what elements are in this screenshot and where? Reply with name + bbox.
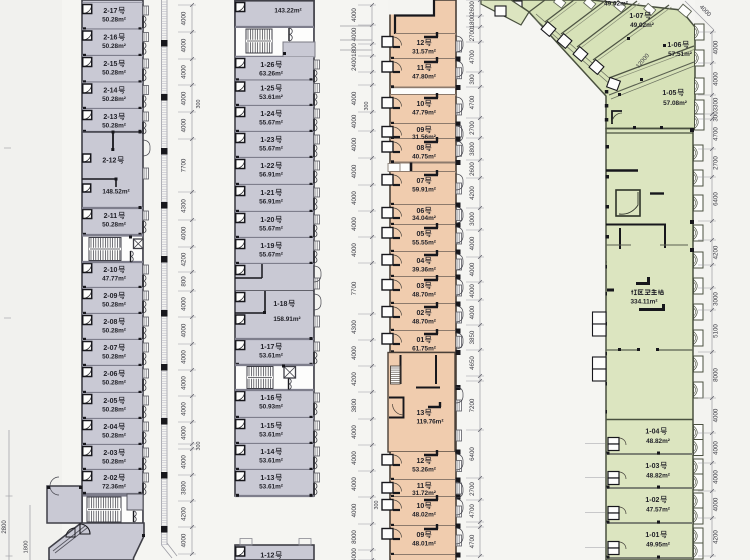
svg-text:4000: 4000	[181, 226, 188, 240]
svg-text:300: 300	[364, 102, 370, 111]
svg-text:47.77m²: 47.77m²	[102, 276, 126, 283]
svg-text:4000: 4000	[351, 217, 358, 231]
svg-text:61.75m²: 61.75m²	[412, 346, 436, 353]
svg-text:3850: 3850	[469, 330, 476, 344]
svg-text:50.28m²: 50.28m²	[102, 459, 126, 466]
svg-text:50.93m²: 50.93m²	[259, 404, 283, 411]
svg-text:4000: 4000	[351, 27, 358, 41]
svg-text:8000: 8000	[351, 530, 358, 544]
svg-text:31.72m²: 31.72m²	[412, 490, 436, 497]
svg-text:57.08m²: 57.08m²	[663, 100, 687, 107]
svg-text:2700: 2700	[469, 121, 476, 135]
svg-text:09: 09	[417, 127, 425, 134]
svg-text:49.02m²: 49.02m²	[604, 1, 628, 8]
svg-text:48.70m²: 48.70m²	[412, 292, 436, 299]
svg-text:56.91m²: 56.91m²	[259, 172, 283, 179]
svg-text:2-11: 2-11	[104, 213, 118, 220]
svg-text:300: 300	[713, 111, 720, 122]
svg-text:4000: 4000	[181, 91, 188, 105]
svg-text:3800: 3800	[469, 142, 476, 156]
svg-text:4200: 4200	[351, 372, 358, 386]
svg-text:1-20: 1-20	[260, 217, 274, 224]
svg-text:300: 300	[469, 74, 476, 85]
svg-text:1-14: 1-14	[260, 449, 274, 456]
svg-text:1-17: 1-17	[260, 344, 274, 351]
svg-text:2600: 2600	[469, 1, 476, 15]
svg-text:48.70m²: 48.70m²	[412, 319, 436, 326]
svg-text:50.28m²: 50.28m²	[102, 407, 126, 414]
svg-text:50.28m²: 50.28m²	[102, 328, 126, 335]
svg-text:4700: 4700	[469, 504, 476, 518]
svg-text:300: 300	[196, 442, 202, 451]
svg-text:49.95m²: 49.95m²	[646, 542, 670, 549]
svg-text:55.67m²: 55.67m²	[259, 252, 283, 259]
svg-text:300: 300	[374, 501, 380, 510]
svg-text:2-12: 2-12	[102, 158, 116, 165]
svg-text:7700: 7700	[181, 158, 188, 172]
svg-text:1-16: 1-16	[260, 395, 274, 402]
svg-text:4000: 4000	[713, 470, 720, 484]
svg-text:1-21: 1-21	[260, 190, 274, 197]
svg-text:1800: 1800	[469, 14, 476, 28]
svg-text:1-23: 1-23	[260, 137, 274, 144]
svg-text:1-22: 1-22	[260, 163, 274, 170]
svg-text:2800: 2800	[2, 520, 8, 534]
svg-text:55.67m²: 55.67m²	[259, 226, 283, 233]
svg-text:04: 04	[417, 258, 425, 265]
svg-text:13: 13	[417, 410, 425, 417]
svg-text:10: 10	[417, 101, 425, 108]
svg-text:40.75m²: 40.75m²	[412, 154, 436, 161]
svg-text:4000: 4000	[181, 376, 188, 390]
svg-text:4200: 4200	[713, 530, 720, 544]
svg-text:11: 11	[417, 65, 425, 72]
svg-text:2-05: 2-05	[103, 398, 117, 405]
svg-text:4300: 4300	[181, 199, 188, 213]
svg-text:50.28m²: 50.28m²	[102, 17, 126, 24]
svg-text:4200: 4200	[713, 245, 720, 259]
svg-text:48.82m²: 48.82m²	[646, 438, 670, 445]
svg-text:1-04: 1-04	[645, 429, 659, 436]
svg-text:01: 01	[417, 337, 425, 344]
svg-text:31.57m²: 31.57m²	[412, 49, 436, 56]
svg-text:2600: 2600	[469, 162, 476, 176]
svg-text:4000: 4000	[469, 284, 476, 298]
svg-text:4000: 4000	[351, 137, 358, 151]
svg-text:4000: 4000	[351, 425, 358, 439]
svg-text:06: 06	[417, 208, 425, 215]
svg-text:50.28m²: 50.28m²	[102, 123, 126, 130]
svg-text:1-07: 1-07	[629, 13, 643, 20]
svg-text:4000: 4000	[469, 262, 476, 276]
svg-text:4000: 4000	[469, 236, 476, 250]
svg-text:50.28m²: 50.28m²	[102, 302, 126, 309]
svg-text:119.76m²: 119.76m²	[416, 419, 443, 426]
svg-text:34.04m²: 34.04m²	[412, 215, 436, 222]
svg-text:4000: 4000	[713, 497, 720, 511]
svg-text:1-26: 1-26	[260, 62, 274, 69]
svg-text:57.51m²: 57.51m²	[668, 51, 692, 58]
svg-text:55.67m²: 55.67m²	[259, 146, 283, 153]
svg-text:2-16: 2-16	[103, 35, 117, 42]
svg-text:800: 800	[181, 276, 188, 287]
svg-text:48.01m²: 48.01m²	[412, 541, 436, 548]
svg-text:59.91m²: 59.91m²	[412, 187, 436, 194]
svg-text:4000: 4000	[181, 118, 188, 132]
svg-text:11: 11	[417, 483, 425, 490]
svg-text:4700: 4700	[469, 50, 476, 64]
svg-text:47.57m²: 47.57m²	[646, 507, 670, 514]
svg-text:4000: 4000	[351, 503, 358, 517]
svg-text:2-10: 2-10	[103, 267, 117, 274]
svg-text:4000: 4000	[351, 8, 358, 22]
svg-text:55.55m²: 55.55m²	[412, 240, 436, 247]
svg-text:7700: 7700	[351, 281, 358, 295]
svg-text:50.28m²: 50.28m²	[102, 222, 126, 229]
svg-text:2-02: 2-02	[103, 475, 117, 482]
svg-text:53.61m²: 53.61m²	[259, 458, 283, 465]
svg-text:53.61m²: 53.61m²	[259, 94, 283, 101]
svg-text:48.82m²: 48.82m²	[646, 473, 670, 480]
svg-text:2-07: 2-07	[103, 345, 117, 352]
svg-text:4200: 4200	[469, 186, 476, 200]
svg-text:143.22m²: 143.22m²	[274, 8, 301, 15]
svg-text:53.26m²: 53.26m²	[412, 467, 436, 474]
svg-text:4000: 4000	[351, 477, 358, 491]
svg-text:1-05: 1-05	[662, 90, 676, 97]
svg-text:2700: 2700	[469, 27, 476, 41]
svg-text:2-06: 2-06	[103, 371, 117, 378]
svg-text:2-14: 2-14	[103, 88, 117, 95]
svg-text:50.28m²: 50.28m²	[102, 70, 126, 77]
svg-text:10: 10	[417, 503, 425, 510]
svg-text:1-03: 1-03	[645, 463, 659, 470]
svg-text:3000: 3000	[713, 292, 720, 306]
svg-text:4000: 4000	[713, 441, 720, 455]
svg-text:158.91m²: 158.91m²	[273, 316, 300, 323]
svg-text:2-13: 2-13	[103, 114, 117, 121]
svg-text:4000: 4000	[181, 533, 188, 547]
svg-text:1-15: 1-15	[260, 423, 274, 430]
svg-text:2-08: 2-08	[103, 319, 117, 326]
svg-text:3300: 3300	[713, 97, 720, 111]
svg-text:4000: 4000	[351, 451, 358, 465]
svg-text:1-12: 1-12	[260, 553, 274, 560]
svg-text:4000: 4000	[351, 346, 358, 360]
svg-text:56.91m²: 56.91m²	[259, 199, 283, 206]
svg-text:48.02m²: 48.02m²	[412, 512, 436, 519]
svg-text:2400: 2400	[351, 57, 358, 71]
svg-text:1-18: 1-18	[273, 301, 287, 308]
svg-text:3000: 3000	[469, 212, 476, 226]
svg-text:50.28m²: 50.28m²	[102, 433, 126, 440]
svg-text:47.79m²: 47.79m²	[412, 110, 436, 117]
svg-text:8000: 8000	[713, 368, 720, 382]
svg-text:4700: 4700	[713, 127, 720, 141]
svg-text:63.26m²: 63.26m²	[259, 71, 283, 78]
svg-text:49.02m²: 49.02m²	[630, 22, 654, 29]
svg-text:1800: 1800	[24, 541, 30, 554]
svg-text:2-09: 2-09	[103, 293, 117, 300]
svg-text:2-17: 2-17	[103, 8, 117, 15]
svg-text:6400: 6400	[469, 447, 476, 461]
svg-text:300: 300	[196, 100, 202, 109]
svg-text:4000: 4000	[351, 114, 358, 128]
svg-text:4700: 4700	[469, 534, 476, 548]
svg-text:4000: 4000	[181, 38, 188, 52]
svg-text:4000: 4000	[181, 426, 188, 440]
svg-text:50.28m²: 50.28m²	[102, 43, 126, 50]
svg-text:4000: 4000	[181, 11, 188, 25]
svg-text:03: 03	[417, 283, 425, 290]
svg-text:1-19: 1-19	[260, 243, 274, 250]
svg-text:4700: 4700	[469, 95, 476, 109]
svg-text:55.67m²: 55.67m²	[259, 120, 283, 127]
svg-text:4650: 4650	[469, 356, 476, 370]
svg-text:12: 12	[417, 458, 425, 465]
svg-text:1-13: 1-13	[260, 475, 274, 482]
svg-text:4300: 4300	[351, 320, 358, 334]
svg-text:47.80m²: 47.80m²	[412, 74, 436, 81]
svg-text:07: 07	[417, 178, 425, 185]
svg-text:4000: 4000	[713, 72, 720, 86]
svg-text:4200: 4200	[181, 252, 188, 266]
svg-text:4000: 4000	[181, 65, 188, 79]
svg-text:1-01: 1-01	[645, 532, 659, 539]
svg-text:02: 02	[417, 310, 425, 317]
svg-text:1-02: 1-02	[645, 497, 659, 504]
svg-text:4000: 4000	[351, 91, 358, 105]
svg-text:4000: 4000	[351, 548, 358, 560]
svg-text:7200: 7200	[469, 398, 476, 412]
svg-text:2-03: 2-03	[103, 450, 117, 457]
svg-text:2700: 2700	[713, 156, 720, 170]
svg-text:1-06: 1-06	[667, 42, 681, 49]
svg-text:6400: 6400	[713, 192, 720, 206]
svg-text:4000: 4000	[181, 402, 188, 416]
svg-text:5100: 5100	[713, 324, 720, 338]
svg-text:2700: 2700	[469, 482, 476, 496]
svg-text:1-24: 1-24	[260, 111, 274, 118]
svg-text:53.61m²: 53.61m²	[259, 484, 283, 491]
svg-text:39.36m²: 39.36m²	[412, 267, 436, 274]
svg-text:50.28m²: 50.28m²	[102, 354, 126, 361]
svg-text:1-25: 1-25	[260, 86, 274, 93]
svg-text:4000: 4000	[469, 305, 476, 319]
svg-text:4000: 4000	[351, 164, 358, 178]
svg-text:09: 09	[417, 532, 425, 539]
svg-text:08: 08	[417, 145, 425, 152]
svg-text:4000: 4000	[181, 350, 188, 364]
svg-text:148.52m²: 148.52m²	[102, 189, 129, 196]
svg-text:4000: 4000	[181, 297, 188, 311]
svg-text:334.11m²: 334.11m²	[630, 299, 657, 306]
svg-text:2-15: 2-15	[103, 61, 117, 68]
svg-text:4000: 4000	[181, 323, 188, 337]
svg-text:53.61m²: 53.61m²	[259, 353, 283, 360]
svg-text:4000: 4000	[713, 408, 720, 422]
svg-text:4000: 4000	[713, 40, 720, 54]
svg-text:3800: 3800	[181, 481, 188, 495]
svg-text:2-04: 2-04	[103, 424, 117, 431]
svg-text:4000: 4000	[351, 191, 358, 205]
svg-text:05: 05	[417, 231, 425, 238]
svg-text:4200: 4200	[181, 507, 188, 521]
svg-text:50.28m²: 50.28m²	[102, 380, 126, 387]
svg-text:3800: 3800	[351, 398, 358, 412]
svg-text:72.36m²: 72.36m²	[102, 484, 126, 491]
svg-text:12: 12	[417, 40, 425, 47]
svg-text:53.61m²: 53.61m²	[259, 432, 283, 439]
svg-text:4000: 4000	[351, 243, 358, 257]
svg-text:50.28m²: 50.28m²	[102, 96, 126, 103]
svg-text:4000: 4000	[181, 455, 188, 469]
